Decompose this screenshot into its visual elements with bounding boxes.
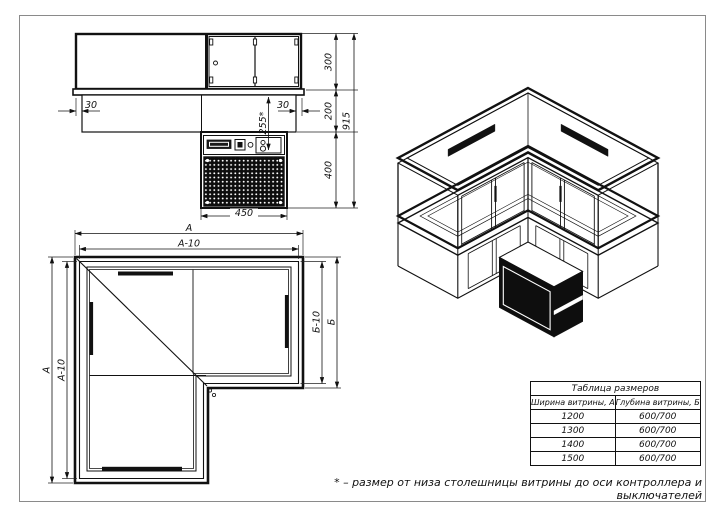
size-table-title: Таблица размеров bbox=[531, 382, 701, 396]
front-elevation-view: 30 30 255* 450 300 200 4 bbox=[40, 20, 372, 222]
table-row: 1200 600/700 bbox=[531, 410, 701, 424]
table-row: 1400 600/700 bbox=[531, 438, 701, 452]
col-header-depth: Глубина витрины, Б bbox=[615, 396, 700, 410]
dim-upper-height: 300 bbox=[324, 53, 335, 71]
countertop bbox=[73, 89, 304, 95]
dim-middle-height: 200 bbox=[324, 102, 335, 120]
elevation-structure bbox=[73, 34, 304, 208]
dim-inset-left: 30 bbox=[85, 100, 97, 111]
upper-cabinet bbox=[76, 34, 301, 89]
corner-fitting bbox=[212, 393, 215, 396]
size-table: Таблица размеров Ширина витрины, А Глуби… bbox=[530, 381, 701, 466]
cell-depth: 600/700 bbox=[615, 410, 700, 424]
dim-controller-axis: 255* bbox=[258, 111, 269, 134]
dim-height-a: А bbox=[42, 367, 53, 375]
controller-display bbox=[207, 140, 231, 149]
isometric-view bbox=[370, 40, 710, 350]
dim-condenser-width: 450 bbox=[235, 208, 253, 219]
cell-width: 1400 bbox=[531, 438, 616, 452]
indicator-lamp bbox=[248, 142, 253, 147]
cell-depth: 600/700 bbox=[615, 438, 700, 452]
dim-width-a10: А-10 bbox=[177, 239, 200, 250]
plan-view: А А-10 А А-10 Б-10 Б bbox=[40, 222, 352, 488]
plan-structure bbox=[75, 257, 303, 483]
switch-toggle bbox=[238, 142, 243, 148]
dim-height-a10: А-10 bbox=[57, 359, 68, 382]
table-row: 1500 600/700 bbox=[531, 452, 701, 466]
dim-inset-right: 30 bbox=[277, 100, 289, 111]
cell-depth: 600/700 bbox=[615, 424, 700, 438]
door-lock bbox=[214, 61, 218, 65]
ventilation-grille bbox=[204, 157, 284, 206]
table-row: 1300 600/700 bbox=[531, 424, 701, 438]
col-header-width: Ширина витрины, А bbox=[531, 396, 616, 410]
cell-width: 1300 bbox=[531, 424, 616, 438]
cell-width: 1500 bbox=[531, 452, 616, 466]
cell-depth: 600/700 bbox=[615, 452, 700, 466]
dim-depth-b: Б bbox=[327, 318, 338, 325]
dim-width-a: А bbox=[185, 223, 193, 234]
footnote: * – размер от низа столешницы витрины до… bbox=[330, 476, 702, 502]
drawing-sheet: 30 30 255* 450 300 200 4 bbox=[0, 0, 720, 520]
dim-lower-height: 400 bbox=[324, 161, 335, 179]
dim-depth-b10: Б-10 bbox=[312, 311, 323, 333]
cell-width: 1200 bbox=[531, 410, 616, 424]
dim-total-height: 915 bbox=[342, 112, 353, 130]
